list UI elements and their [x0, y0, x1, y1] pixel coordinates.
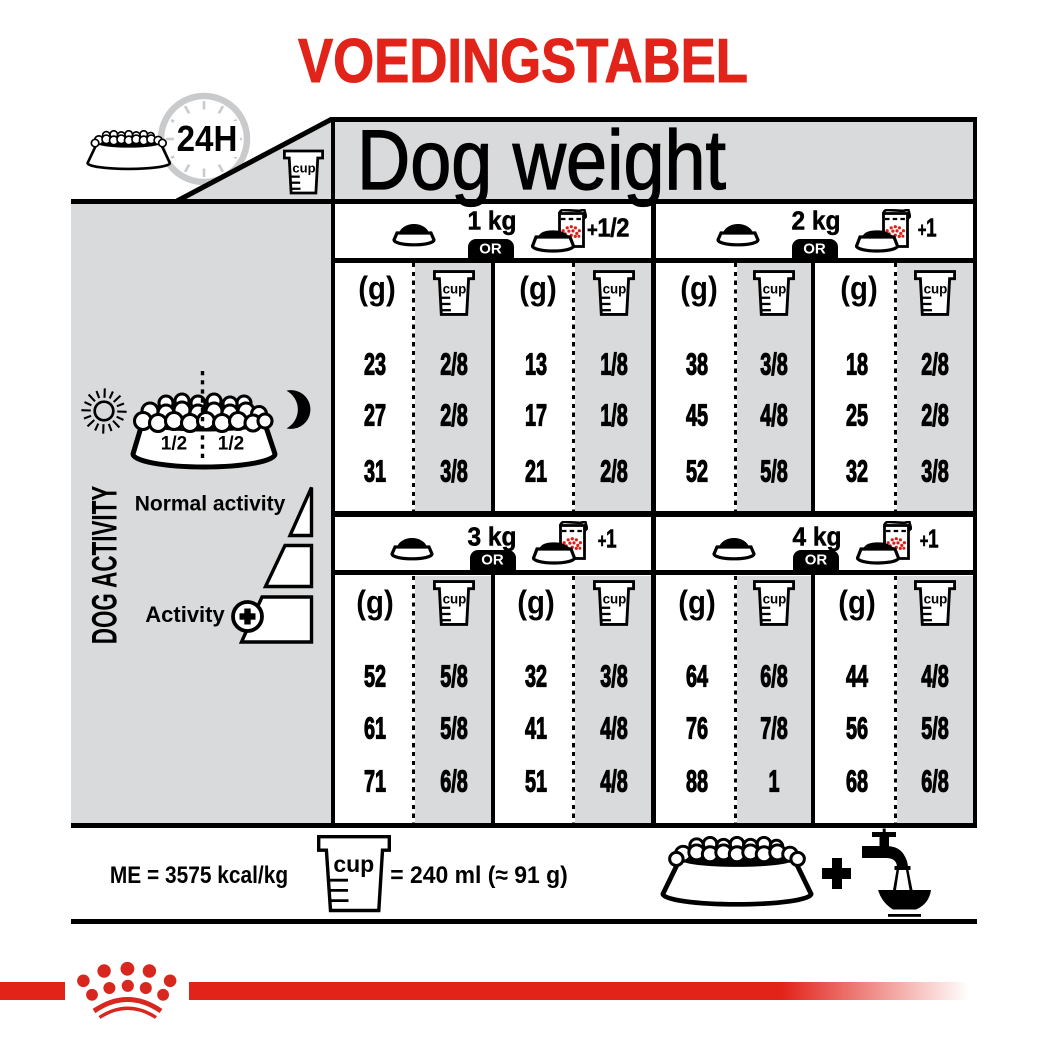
svg-text:cup: cup: [333, 851, 374, 877]
